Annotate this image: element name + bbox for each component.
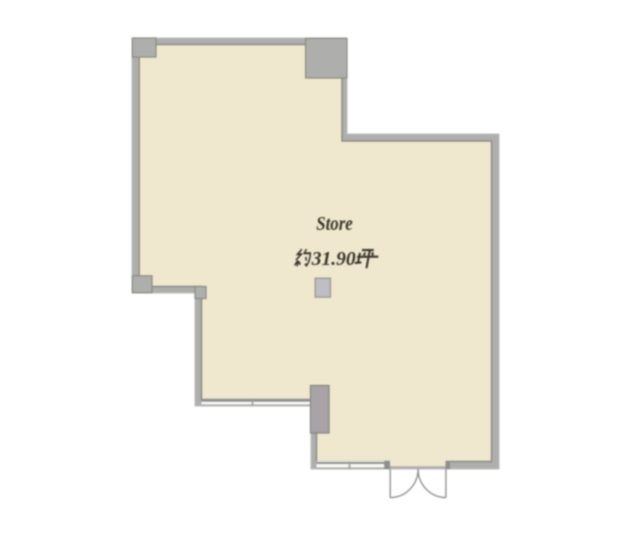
svg-text:31.90: 31.90: [311, 248, 356, 270]
svg-text:Store: Store: [316, 214, 353, 235]
